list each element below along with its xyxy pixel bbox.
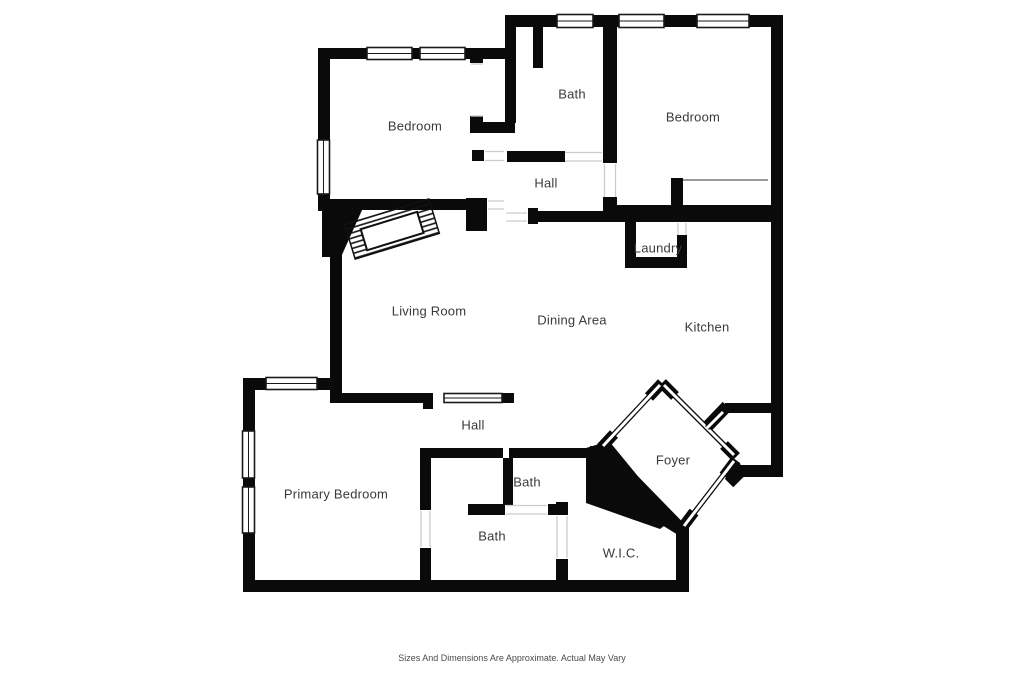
window [557, 15, 593, 28]
window [318, 140, 330, 194]
room-label-foyer: Foyer [656, 453, 690, 468]
room-label-hall-lower: Hall [461, 418, 484, 433]
floor-plan: BedroomBathBedroomHallLaundryLiving Room… [0, 0, 1024, 682]
window [619, 15, 664, 28]
room-label-bedroom-top-left: Bedroom [388, 119, 442, 134]
window [444, 394, 502, 403]
window [243, 487, 255, 533]
diagonal-walls [586, 406, 744, 531]
room-label-hall-upper: Hall [534, 176, 557, 191]
railing-top-right [664, 385, 734, 455]
railing-bottom-right [684, 461, 734, 526]
window [243, 431, 255, 478]
room-label-bath-small: Bath [513, 475, 541, 490]
disclaimer: Sizes And Dimensions Are Approximate. Ac… [398, 653, 625, 663]
window [420, 48, 465, 60]
room-label-wic: W.I.C. [603, 546, 640, 561]
room-label-bath-top: Bath [558, 87, 586, 102]
railing-top-left [603, 385, 660, 446]
floor-plan-svg [0, 0, 1024, 682]
room-label-kitchen: Kitchen [685, 320, 730, 335]
window [367, 48, 412, 60]
room-label-bath-primary: Bath [478, 529, 506, 544]
room-label-bedroom-top-right: Bedroom [666, 110, 720, 125]
room-label-primary-bedroom: Primary Bedroom [284, 487, 388, 502]
window [697, 15, 749, 28]
window [266, 378, 317, 390]
room-label-dining-area: Dining Area [537, 313, 606, 328]
room-label-living-room: Living Room [392, 304, 466, 319]
room-label-laundry: Laundry [634, 241, 682, 256]
